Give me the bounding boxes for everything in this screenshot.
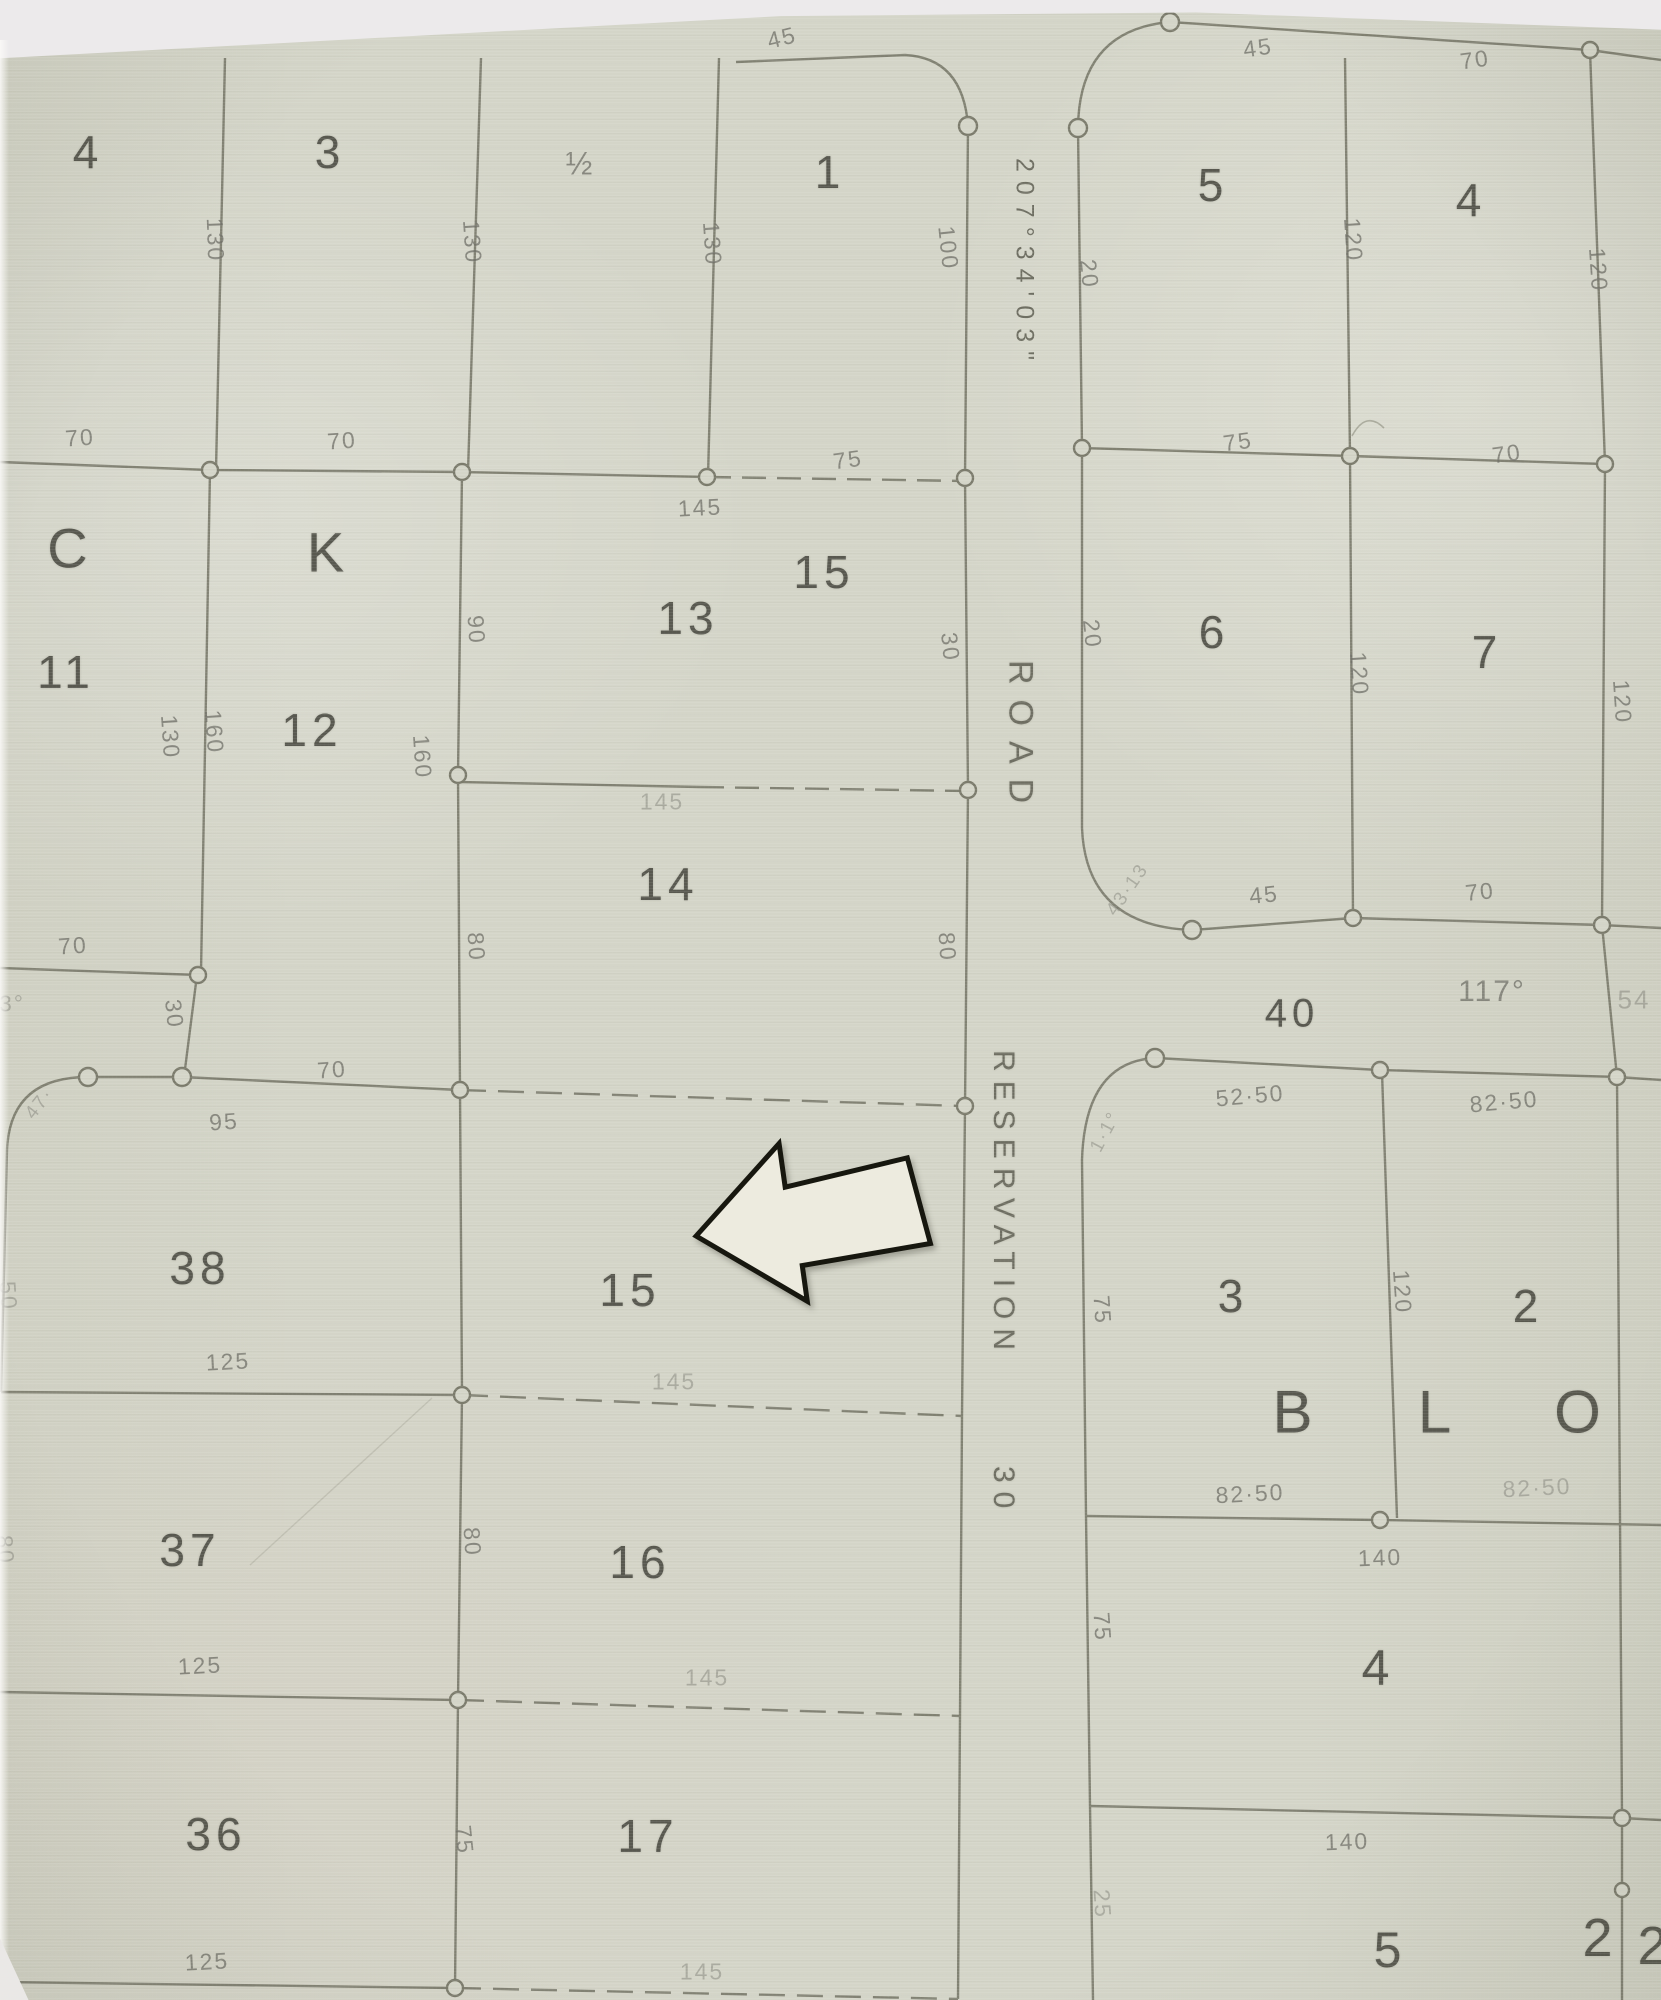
plat-map-photo: 43½154CK11121315671415161738373632BLO452… [0,0,1661,2000]
left-arrow-shape [685,1125,936,1316]
highlight-arrow [0,0,1661,2000]
